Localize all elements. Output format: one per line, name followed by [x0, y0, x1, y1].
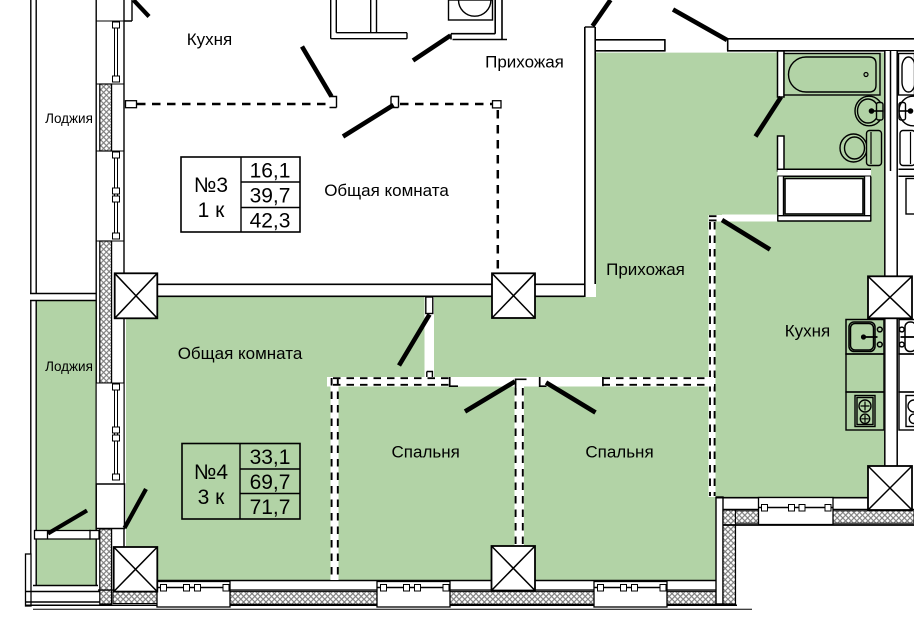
svg-text:71,7: 71,7: [250, 496, 291, 519]
svg-text:1 к: 1 к: [198, 199, 226, 222]
svg-text:42,3: 42,3: [250, 210, 291, 233]
svg-text:Общая комната: Общая комната: [324, 181, 449, 200]
svg-text:№3: №3: [194, 174, 228, 197]
svg-text:№4: №4: [194, 461, 229, 484]
svg-text:Прихожая: Прихожая: [606, 260, 685, 279]
svg-text:Кухня: Кухня: [785, 322, 831, 341]
svg-text:Кухня: Кухня: [187, 30, 233, 49]
svg-text:33,1: 33,1: [250, 446, 291, 469]
svg-text:Общая комната: Общая комната: [178, 344, 303, 363]
svg-text:Лоджия: Лоджия: [45, 359, 93, 374]
svg-text:3 к: 3 к: [198, 486, 226, 509]
svg-text:39,7: 39,7: [250, 185, 291, 208]
svg-text:Лоджия: Лоджия: [45, 111, 93, 126]
svg-text:69,7: 69,7: [250, 471, 291, 494]
svg-text:16,1: 16,1: [250, 160, 291, 183]
svg-text:Спальня: Спальня: [585, 442, 653, 461]
svg-text:Спальня: Спальня: [392, 442, 460, 461]
svg-text:Прихожая: Прихожая: [485, 53, 564, 72]
